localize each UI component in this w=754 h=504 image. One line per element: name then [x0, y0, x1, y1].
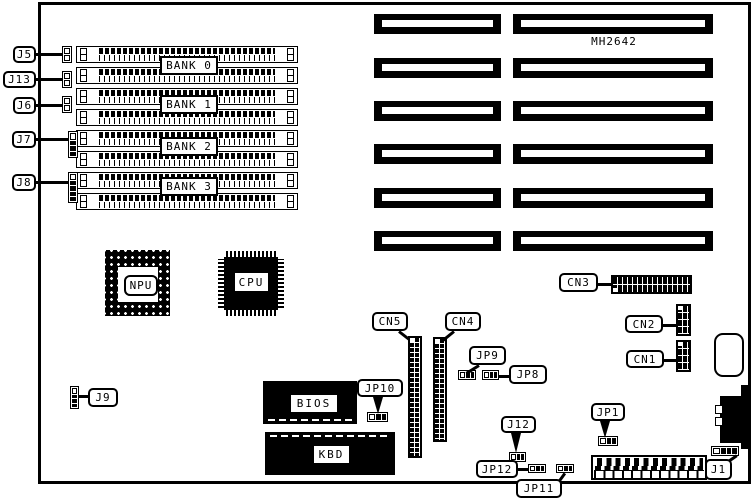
cn4-pin1 — [435, 339, 439, 343]
pointer-jp10 — [373, 397, 383, 414]
cn5-connector — [408, 336, 422, 458]
expansion-slot — [374, 231, 501, 251]
jumper-j13 — [62, 71, 72, 88]
battery-outline — [714, 333, 744, 377]
keyboard-din-notch — [715, 417, 723, 426]
power-connector — [591, 455, 707, 480]
cn1-pin1 — [678, 342, 682, 346]
pointer-jp1 — [600, 421, 610, 438]
pointer-j12 — [511, 433, 521, 453]
label-j13: J13 — [3, 71, 36, 88]
label-cn5: CN5 — [372, 312, 408, 331]
expansion-slot — [374, 101, 501, 121]
cpu-chip: CPU — [218, 251, 284, 316]
label-j7: J7 — [12, 131, 36, 148]
cn2-pin1 — [678, 306, 682, 310]
label-cn2: CN2 — [625, 315, 663, 333]
expansion-slot — [513, 58, 713, 78]
power-pins-bottom — [594, 470, 704, 478]
npu-socket: NPU — [105, 250, 170, 316]
pointer-cn3 — [597, 283, 611, 286]
jumper-jp12 — [528, 464, 546, 473]
jumper-j5 — [62, 46, 72, 63]
label-jp12: JP12 — [476, 460, 518, 478]
pointer-cn1 — [663, 359, 676, 362]
kbd-label: KBD — [314, 446, 349, 463]
expansion-slot — [513, 101, 713, 121]
cpu-leads-bottom — [226, 309, 276, 316]
expansion-slot — [513, 14, 713, 34]
cn4-connector — [433, 337, 447, 442]
label-jp9: JP9 — [469, 346, 506, 365]
label-j12: J12 — [501, 416, 536, 433]
bios-label: BIOS — [291, 395, 337, 412]
cpu-leads-right — [277, 259, 284, 308]
label-cn3: CN3 — [559, 273, 598, 292]
jumper-j6 — [62, 96, 72, 113]
label-jp11: JP11 — [516, 479, 562, 498]
bios-notch — [268, 419, 352, 421]
power-pins-top — [595, 458, 703, 466]
label-j6: J6 — [13, 97, 36, 114]
cpu-label: CPU — [235, 273, 268, 291]
label-j8: J8 — [12, 174, 36, 191]
keyboard-din-connector — [720, 396, 750, 443]
pointer-j13 — [36, 78, 63, 81]
jumper-j8 — [68, 172, 78, 203]
pointer-cn2 — [662, 324, 676, 327]
bios-chip: BIOS — [263, 381, 357, 424]
expansion-slot — [374, 14, 501, 34]
jumper-jp11 — [556, 464, 574, 473]
kbd-notch — [270, 435, 390, 437]
label-cn1: CN1 — [626, 350, 664, 368]
bank-0-label: BANK 0 — [160, 56, 218, 75]
cn3-pin1 — [613, 288, 617, 292]
label-jp1: JP1 — [591, 403, 625, 421]
keyboard-din-notch — [715, 405, 723, 414]
expansion-slot — [513, 231, 713, 251]
kbd-chip: KBD — [265, 432, 395, 475]
pointer-j5 — [36, 53, 63, 56]
motherboard-diagram: MH2642 BANK 0 BANK 1 BANK 2 BANK 3 J5 J1… — [0, 0, 754, 504]
expansion-slot — [374, 58, 501, 78]
cn5-pin1 — [410, 338, 414, 342]
expansion-slot — [374, 188, 501, 208]
cn1-connector — [676, 340, 691, 372]
cn2-connector — [676, 304, 691, 336]
label-jp8: JP8 — [509, 365, 547, 384]
cn3-connector — [611, 275, 692, 294]
label-cn4: CN4 — [445, 312, 481, 331]
keyboard-din-tab-bottom — [741, 443, 750, 449]
bank-1-label: BANK 1 — [160, 95, 218, 114]
npu-label: NPU — [124, 275, 158, 296]
label-j1: J1 — [705, 459, 732, 480]
bank-2-label: BANK 2 — [160, 137, 218, 156]
pointer-j8 — [36, 181, 69, 184]
jumper-jp8 — [482, 370, 499, 380]
bank-3-label: BANK 3 — [160, 177, 218, 196]
jumper-j7 — [68, 131, 78, 158]
jumper-j9 — [70, 386, 79, 409]
expansion-slot — [513, 144, 713, 164]
label-jp10: JP10 — [357, 379, 403, 397]
expansion-slot — [374, 144, 501, 164]
keyboard-din-tab-top — [741, 385, 750, 397]
expansion-slot — [513, 188, 713, 208]
pointer-j6 — [36, 104, 63, 107]
pointer-j7 — [36, 138, 69, 141]
part-number: MH2642 — [584, 35, 644, 48]
label-j9: J9 — [88, 388, 118, 407]
label-j5: J5 — [13, 46, 36, 63]
